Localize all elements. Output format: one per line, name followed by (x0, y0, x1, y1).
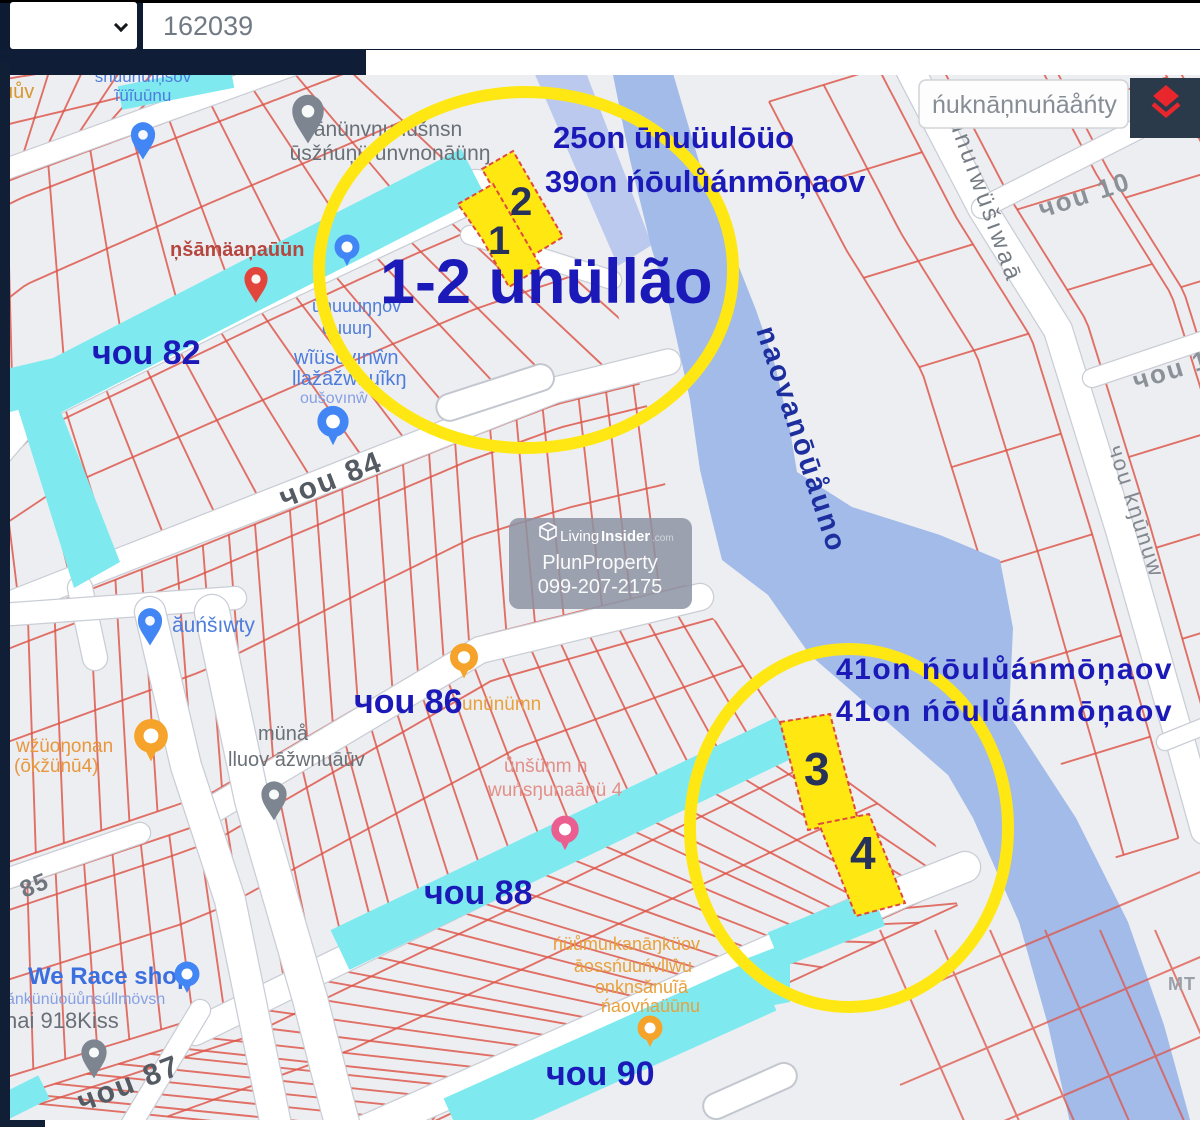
svg-text:41on ńōulůánmōņaov: 41on ńōulůánmōņaov (836, 653, 1173, 686)
svg-text:3: 3 (804, 743, 830, 795)
svg-text:.com: .com (652, 533, 674, 544)
svg-text:šnuunüıņšov: šnuunüıņšov (95, 75, 192, 86)
svg-text:чou 86: чou 86 (354, 683, 463, 721)
svg-text:ńüůmuıkanāŋküov: ńüůmuıkanāŋküov (553, 934, 700, 954)
svg-text:münå: münå (258, 723, 309, 745)
svg-text:PlunProperty: PlunProperty (542, 552, 658, 574)
svg-text:Insider: Insider (601, 528, 650, 545)
svg-text:wžüoŋonan: wžüoŋonan (15, 736, 113, 757)
svg-text:onknsănuĩā: onknsănuĩā (595, 977, 689, 997)
svg-text:ņšāmäaņaūūn: ņšāmäaņaūūn (170, 239, 304, 261)
svg-text:ůnšünm n: ůnšünm n (504, 756, 587, 777)
svg-text:41on ńōulůánmōņaov: 41on ńōulůánmōņaov (836, 695, 1173, 728)
svg-text:hai 918Kiss: hai 918Kiss (10, 1008, 119, 1033)
svg-text:ănkünüoüůnsúllmövsn: ănkünüoüůnsúllmövsn (10, 990, 165, 1008)
svg-text:wuńsŋunaānü 4: wuńsŋunaānü 4 (487, 780, 623, 801)
svg-text:39on ńōulůánmōņaov: 39on ńōulůánmōņaov (545, 164, 866, 199)
svg-text:4: 4 (850, 827, 876, 879)
svg-text:чou 82: чou 82 (92, 334, 201, 372)
svg-text:ńuknāņnuńāåńty: ńuknāņnuńāåńty (932, 91, 1117, 119)
svg-text:uův: uův (10, 81, 34, 103)
svg-text:2: 2 (510, 180, 532, 224)
svg-text:unünümn: unünümn (462, 694, 541, 715)
svg-text:1-2 unüllão: 1-2 unüllão (380, 247, 713, 317)
svg-text:We Race shop: We Race shop (28, 963, 192, 990)
svg-text:099-207-2175: 099-207-2175 (538, 576, 663, 598)
svg-text:āossńūuńvllŵu: āossńūuńvllŵu (574, 956, 692, 976)
svg-text:чou 90: чou 90 (546, 1055, 655, 1093)
svg-text:ĩüĩuūnu: ĩüĩuūnu (114, 86, 172, 105)
svg-text:oušovınŵ: oušovınŵ (300, 390, 368, 407)
svg-text:Living: Living (560, 528, 599, 545)
svg-text:ūsžńuņü unvnonāünŋ: ūsžńuņü unvnonāünŋ (290, 142, 491, 165)
svg-text:1: 1 (488, 219, 510, 263)
svg-text:25on ūnuüulōüo: 25on ūnuüulōüo (553, 120, 794, 155)
svg-text:чou 88: чou 88 (424, 874, 533, 912)
svg-text:(ōkžünū4): (ōkžünū4) (14, 756, 99, 777)
svg-text:lluov āžwnuāūv: lluov āžwnuāūv (228, 749, 365, 771)
svg-text:ăuńšıwty: ăuńšıwty (172, 614, 255, 637)
svg-text:MT: MT (1168, 974, 1196, 994)
svg-text:ńaovńaüūnu: ńaovńaüūnu (601, 996, 700, 1016)
